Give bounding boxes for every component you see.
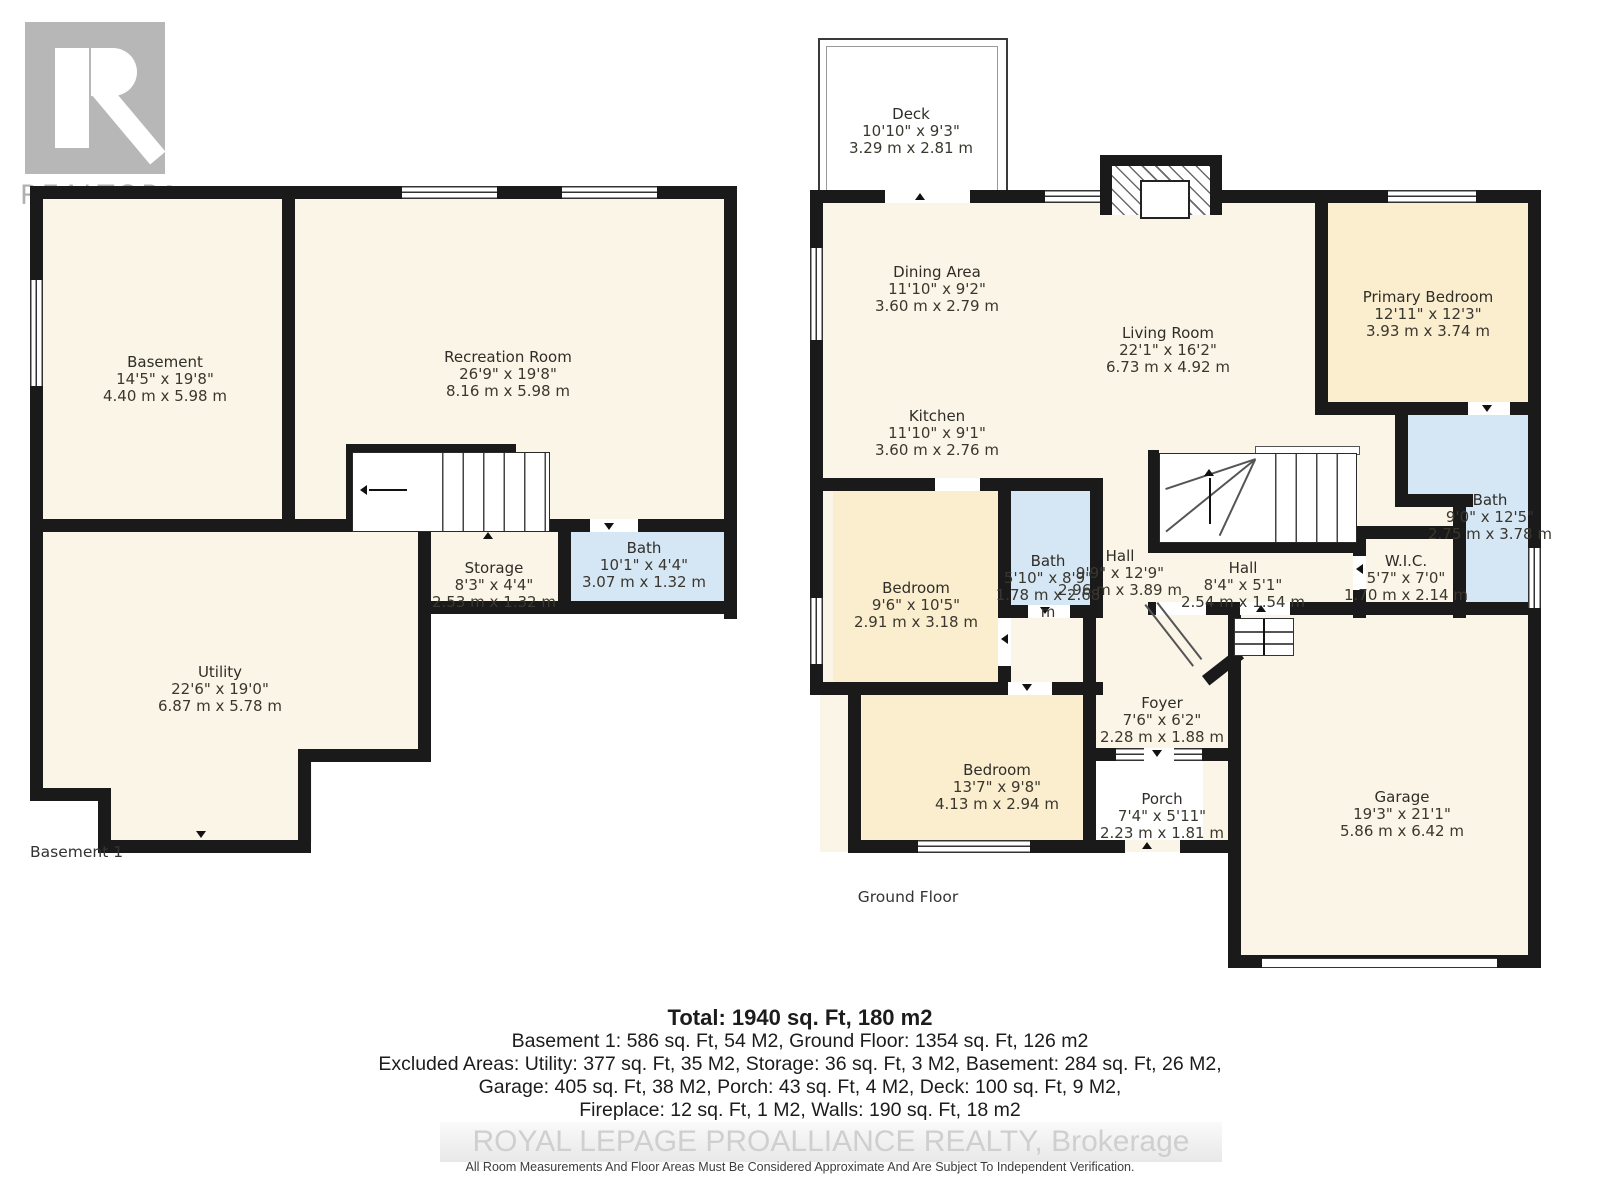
room-name: W.I.C. xyxy=(1336,553,1476,570)
summary-line: Excluded Areas: Utility: 377 sq. Ft, 35 … xyxy=(210,1053,1390,1076)
room-label-garage: Garage 19'3" x 21'1" 5.86 m x 6.42 m xyxy=(1312,789,1492,840)
window xyxy=(1388,190,1476,203)
room-dim-metric: 6.73 m x 4.92 m xyxy=(1078,359,1258,376)
wall-segment xyxy=(30,186,43,801)
room-name: Storage xyxy=(419,560,569,577)
room-label-hall-main: Hall 9'9" x 12'9" 2.96 m x 3.89 m xyxy=(1055,548,1185,599)
room-dim-metric: 2.96 m x 3.89 m xyxy=(1055,582,1185,599)
room-dim-metric: 3.60 m x 2.79 m xyxy=(852,298,1022,315)
room-dim-imperial: 9'0" x 12'5" xyxy=(1415,509,1565,526)
stairs-ground xyxy=(1159,453,1357,543)
garage-door xyxy=(1262,958,1497,968)
room-name: Primary Bedroom xyxy=(1333,289,1523,306)
room-label-bedroom1: Bedroom 9'6" x 10'5" 2.91 m x 3.18 m xyxy=(836,580,996,631)
room-label-primary-bedroom: Primary Bedroom 12'11" x 12'3" 3.93 m x … xyxy=(1333,289,1523,340)
room-dim-metric: 3.29 m x 2.81 m xyxy=(831,140,991,157)
door-arrow xyxy=(1022,684,1032,691)
room-dim-imperial: 11'10" x 9'2" xyxy=(852,281,1022,298)
room-name: Garage xyxy=(1312,789,1492,806)
stair-direction-arrow xyxy=(1204,469,1214,476)
room-name: Porch xyxy=(1087,791,1237,808)
room-name: Bedroom xyxy=(907,762,1087,779)
room-label-bedroom2: Bedroom 13'7" x 9'8" 4.13 m x 2.94 m xyxy=(907,762,1087,813)
room-label-foyer: Foyer 7'6" x 6'2" 2.28 m x 1.88 m xyxy=(1087,695,1237,746)
room-dim-imperial: 7'4" x 5'11" xyxy=(1087,808,1237,825)
room-dim-metric: 4.13 m x 2.94 m xyxy=(907,796,1087,813)
door-opening xyxy=(935,478,980,491)
room-label-storage: Storage 8'3" x 4'4" 2.53 m x 1.32 m xyxy=(419,560,569,611)
room-dim-imperial: 7'6" x 6'2" xyxy=(1087,712,1237,729)
room-dim-metric: 2.91 m x 3.18 m xyxy=(836,614,996,631)
window xyxy=(1528,548,1541,608)
wall-segment xyxy=(30,788,111,801)
brokerage-watermark: ROYAL LEPAGE PROALLIANCE REALTY, Brokera… xyxy=(440,1122,1222,1162)
window xyxy=(402,186,497,199)
realtor-logo-r-bar xyxy=(55,48,89,148)
stairs-basement xyxy=(352,452,550,532)
room-fill-utility-arm xyxy=(312,526,424,754)
room-dim-metric: 2.28 m x 1.88 m xyxy=(1087,729,1237,746)
room-dim-imperial: 14'5" x 19'8" xyxy=(65,371,265,388)
window xyxy=(30,280,43,386)
summary-total: Total: 1940 sq. Ft, 180 m2 xyxy=(210,1006,1390,1030)
front-door-sidelight xyxy=(1116,748,1144,761)
wall-segment xyxy=(1148,450,1159,553)
area-summary: Total: 1940 sq. Ft, 180 m2 Basement 1: 5… xyxy=(210,1006,1390,1122)
room-label-hall-small: Hall 8'4" x 5'1" 2.54 m x 1.54 m xyxy=(1168,560,1318,611)
room-name: Deck xyxy=(831,106,991,123)
room-dim-metric: 2.54 m x 1.54 m xyxy=(1168,594,1318,611)
wall-segment xyxy=(282,192,295,526)
room-label-kitchen: Kitchen 11'10" x 9'1" 3.60 m x 2.76 m xyxy=(852,408,1022,459)
room-dim-metric: 1.70 m x 2.14 m xyxy=(1336,587,1476,604)
front-door-sidelight xyxy=(1174,748,1202,761)
window xyxy=(810,598,823,664)
window xyxy=(918,840,1030,853)
window xyxy=(562,186,657,199)
room-label-porch: Porch 7'4" x 5'11" 2.23 m x 1.81 m xyxy=(1087,791,1237,842)
wall-segment xyxy=(298,749,431,762)
room-fill-utility xyxy=(36,526,312,792)
door-arrow xyxy=(483,532,493,539)
floor-title-basement: Basement 1 xyxy=(30,843,123,861)
measurement-disclaimer: All Room Measurements And Floor Areas Mu… xyxy=(300,1160,1300,1174)
floor-plan-canvas: REALTOR® Basement 14'5" x 19'8" 4.40 m x… xyxy=(0,0,1600,1200)
floor-title-ground: Ground Floor xyxy=(828,888,988,906)
room-dim-metric: 8.16 m x 5.98 m xyxy=(408,383,608,400)
summary-line: Fireplace: 12 sq. Ft, 1 M2, Walls: 190 s… xyxy=(210,1099,1390,1122)
room-dim-imperial: 9'6" x 10'5" xyxy=(836,597,996,614)
wall-segment xyxy=(848,695,861,853)
room-dim-imperial: 13'7" x 9'8" xyxy=(907,779,1087,796)
room-name: Utility xyxy=(120,664,320,681)
room-dim-imperial: 8'4" x 5'1" xyxy=(1168,577,1318,594)
room-dim-metric: 3.93 m x 3.74 m xyxy=(1333,323,1523,340)
room-dim-imperial: 10'1" x 4'4" xyxy=(569,557,719,574)
room-name: Bath xyxy=(1415,492,1565,509)
room-name: Living Room xyxy=(1078,325,1258,342)
room-label-wic: W.I.C. 5'7" x 7'0" 1.70 m x 2.14 m xyxy=(1336,553,1476,604)
wall-segment xyxy=(298,749,311,853)
wall-segment xyxy=(418,519,431,762)
room-dim-metric: 3.60 m x 2.76 m xyxy=(852,442,1022,459)
room-dim-imperial: 11'10" x 9'1" xyxy=(852,425,1022,442)
room-dim-imperial: 10'10" x 9'3" xyxy=(831,123,991,140)
door-opening xyxy=(590,519,638,532)
realtor-logo xyxy=(25,22,165,174)
room-label-utility: Utility 22'6" x 19'0" 6.87 m x 5.78 m xyxy=(120,664,320,715)
realtor-logo-r-leg xyxy=(91,81,165,164)
step-line xyxy=(1263,619,1265,655)
stair-direction-line xyxy=(1209,478,1211,524)
door-arrow xyxy=(1142,842,1152,849)
wall-segment xyxy=(1315,195,1328,415)
room-dim-imperial: 8'3" x 4'4" xyxy=(419,577,569,594)
room-dim-imperial: 9'9" x 12'9" xyxy=(1055,565,1185,582)
stair-treads xyxy=(423,453,549,531)
room-label-bath-top: Bath 9'0" x 12'5" 2.75 m x 3.78 m xyxy=(1415,492,1565,543)
wall-segment xyxy=(810,682,1103,695)
room-label-bath-basement: Bath 10'1" x 4'4" 3.07 m x 1.32 m xyxy=(569,540,719,591)
room-name: Hall xyxy=(1055,548,1185,565)
room-dim-imperial: 12'11" x 12'3" xyxy=(1333,306,1523,323)
room-name: Recreation Room xyxy=(408,349,608,366)
room-name: Kitchen xyxy=(852,408,1022,425)
room-name: Hall xyxy=(1168,560,1318,577)
room-dim-metric: 4.40 m x 5.98 m xyxy=(65,388,265,405)
wall-segment xyxy=(98,840,311,853)
stair-direction-line xyxy=(369,489,407,491)
door-arrow xyxy=(604,523,614,530)
room-fill-utility-lower xyxy=(104,792,312,842)
room-name: Foyer xyxy=(1087,695,1237,712)
room-dim-metric: 6.87 m x 5.78 m xyxy=(120,698,320,715)
room-label-basement: Basement 14'5" x 19'8" 4.40 m x 5.98 m xyxy=(65,354,265,405)
room-name: Bedroom xyxy=(836,580,996,597)
wall-segment xyxy=(1395,402,1408,507)
garage-steps xyxy=(1234,618,1294,656)
room-dim-imperial: 22'6" x 19'0" xyxy=(120,681,320,698)
room-dim-metric: 5.86 m x 6.42 m xyxy=(1312,823,1492,840)
room-name: Basement xyxy=(65,354,265,371)
window xyxy=(810,248,823,340)
room-label-dining: Dining Area 11'10" x 9'2" 3.60 m x 2.79 … xyxy=(852,264,1022,315)
window xyxy=(1045,190,1105,203)
summary-line: Basement 1: 586 sq. Ft, 54 M2, Ground Fl… xyxy=(210,1030,1390,1053)
room-dim-metric: 2.53 m x 1.32 m xyxy=(419,594,569,611)
room-label-deck: Deck 10'10" x 9'3" 3.29 m x 2.81 m xyxy=(831,106,991,157)
door-arrow xyxy=(196,831,206,838)
door-arrow xyxy=(915,193,925,200)
fireplace-firebox xyxy=(1140,180,1190,219)
room-dim-imperial: 19'3" x 21'1" xyxy=(1312,806,1492,823)
stair-direction-arrow xyxy=(360,485,367,495)
door-arrow xyxy=(1482,405,1492,412)
room-name: Bath xyxy=(569,540,719,557)
room-label-recreation: Recreation Room 26'9" x 19'8" 8.16 m x 5… xyxy=(408,349,608,400)
room-dim-metric: 2.75 m x 3.78 m xyxy=(1415,526,1565,543)
room-dim-imperial: 5'7" x 7'0" xyxy=(1336,570,1476,587)
patio-opening xyxy=(885,190,970,203)
room-label-living: Living Room 22'1" x 16'2" 6.73 m x 4.92 … xyxy=(1078,325,1258,376)
stair-treads xyxy=(1256,454,1356,542)
room-dim-imperial: 22'1" x 16'2" xyxy=(1078,342,1258,359)
room-name: Dining Area xyxy=(852,264,1022,281)
door-arrow xyxy=(1152,750,1162,757)
winder-line xyxy=(1219,459,1256,536)
room-dim-imperial: 26'9" x 19'8" xyxy=(408,366,608,383)
door-arrow xyxy=(1001,634,1008,644)
room-dim-metric: 2.23 m x 1.81 m xyxy=(1087,825,1237,842)
summary-line: Garage: 405 sq. Ft, 38 M2, Porch: 43 sq.… xyxy=(210,1076,1390,1099)
room-dim-metric: 3.07 m x 1.32 m xyxy=(569,574,719,591)
wall-segment xyxy=(724,186,737,619)
